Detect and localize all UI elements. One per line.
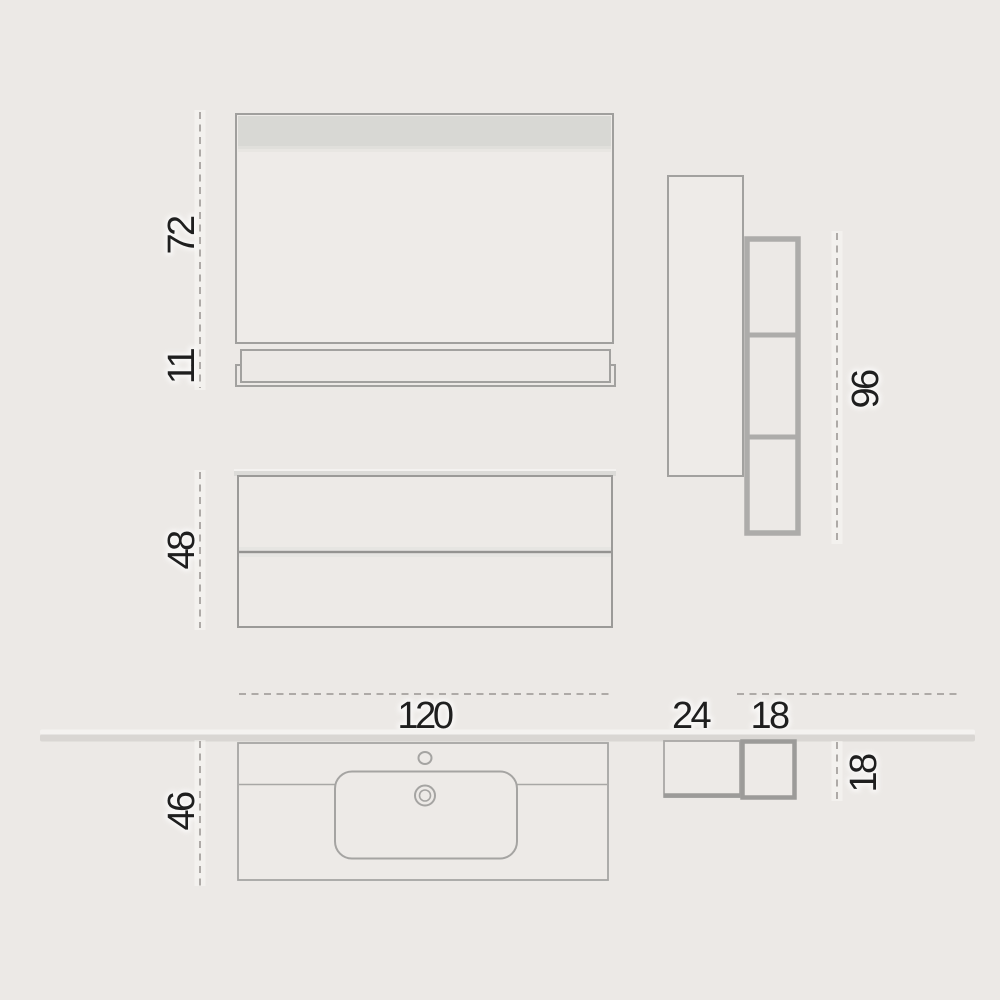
- svg-text:48: 48: [161, 531, 203, 570]
- svg-text:72: 72: [161, 216, 203, 255]
- svg-text:18: 18: [843, 754, 885, 793]
- svg-text:11: 11: [161, 348, 203, 384]
- svg-text:96: 96: [845, 370, 887, 409]
